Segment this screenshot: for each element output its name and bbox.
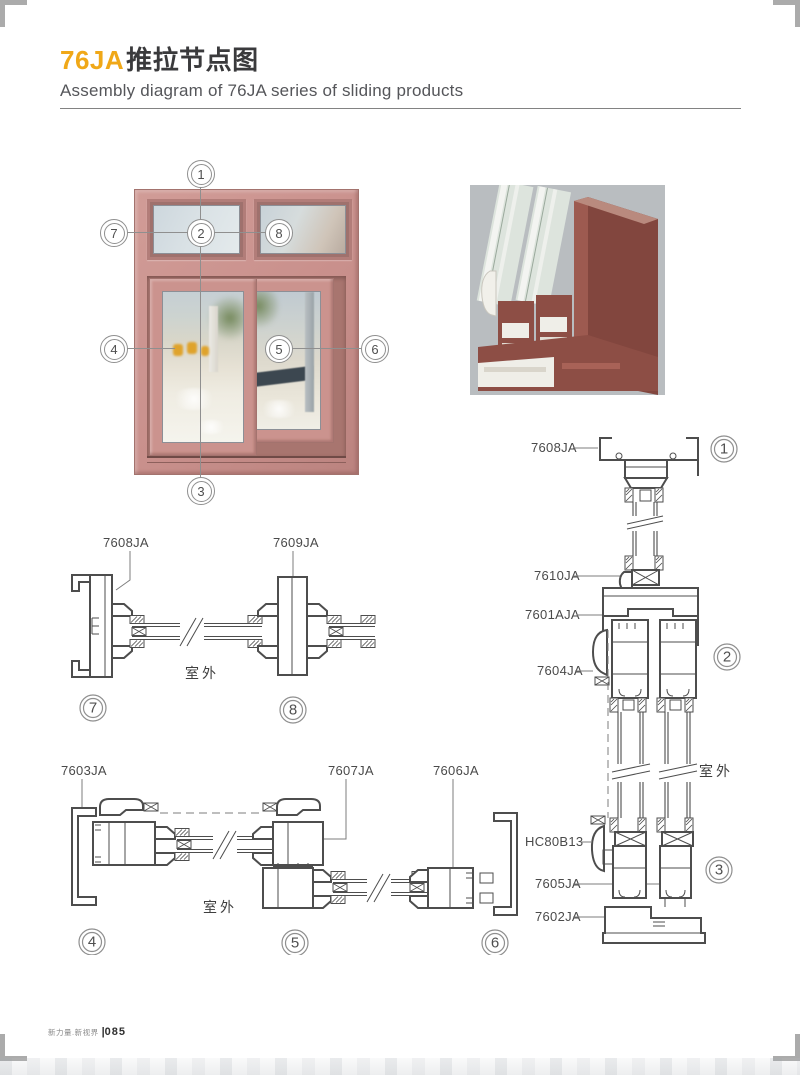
section-callout-7-number: 7 [89, 700, 97, 717]
section-callout-6: 6 [482, 930, 508, 955]
crop-mark-bottom-right [773, 1034, 800, 1061]
page-footer: 新力量.新视界 | 085 [48, 1026, 126, 1038]
callout-line-mid-right [291, 348, 361, 349]
catalog-page: 76JA推拉节点图 Assembly diagram of 76JA serie… [0, 0, 800, 1075]
callout-line-mid-left [126, 348, 175, 349]
callout-5-number: 5 [269, 339, 290, 360]
sash-left [149, 278, 257, 456]
bottom-decor-band [0, 1058, 800, 1075]
callout-7-number: 7 [104, 223, 125, 244]
section-callout-2: 2 [714, 644, 740, 670]
section-callout-8: 8 [280, 697, 306, 723]
callout-4-number: 4 [104, 339, 125, 360]
section-callout-3: 3 [706, 857, 732, 883]
chair-yellow-1 [173, 344, 183, 356]
header-divider [60, 108, 741, 109]
page-title-series: 76JA [60, 45, 124, 75]
crop-mark-top-right [773, 0, 800, 27]
pillar [209, 306, 218, 372]
label-7608ja-right: 7608JA [531, 440, 577, 455]
callout-6-number: 6 [365, 339, 386, 360]
label-7603ja: 7603JA [61, 763, 107, 778]
section-callout-2-number: 2 [723, 649, 731, 666]
section-callout-6-number: 6 [491, 935, 499, 952]
label-hc80b13: HC80B13 [525, 834, 583, 849]
crop-mark-bottom-left [0, 1034, 27, 1061]
chair-yellow-3 [201, 346, 209, 356]
chair-yellow-2 [187, 342, 197, 354]
door-edge [305, 292, 314, 412]
outdoor-label-bottom: 室外 [203, 899, 237, 915]
floor-reflection-left2 [193, 420, 229, 434]
page-header: 76JA推拉节点图 Assembly diagram of 76JA serie… [60, 46, 741, 109]
callout-2: 2 [187, 219, 215, 247]
footer-brand: 新力量.新视界 [48, 1027, 99, 1038]
section-callout-7: 7 [80, 695, 106, 721]
section-callout-1-number: 1 [720, 441, 728, 458]
callout-4: 4 [100, 335, 128, 363]
bench-silhouette [248, 366, 313, 389]
sash-left-glass [162, 291, 244, 443]
bottom-track-line-2 [147, 462, 346, 463]
section-callout-5: 5 [282, 930, 308, 955]
callout-6: 6 [361, 335, 389, 363]
callout-1-number: 1 [191, 164, 212, 185]
callout-1: 1 [187, 160, 215, 188]
page-subtitle: Assembly diagram of 76JA series of slidi… [60, 81, 741, 101]
label-7606ja: 7606JA [433, 763, 479, 778]
callout-7: 7 [100, 219, 128, 247]
floor-reflection [257, 400, 301, 418]
label-7601aja: 7601AJA [525, 607, 580, 622]
label-7608ja-mid: 7608JA [103, 535, 149, 550]
section-callout-1: 1 [711, 436, 737, 462]
profile-3d-render [470, 185, 665, 395]
label-7607ja: 7607JA [328, 763, 374, 778]
callout-3: 3 [187, 477, 215, 505]
callout-3-number: 3 [191, 481, 212, 502]
outdoor-label-mid: 室外 [185, 665, 219, 681]
floor-reflection-left [169, 388, 219, 410]
section-7-8-drawing: 7608JA 7609JA 室外 7 [30, 520, 390, 740]
page-title-cn: 推拉节点图 [126, 45, 259, 75]
page-title: 76JA推拉节点图 [60, 46, 741, 75]
callout-8-number: 8 [269, 223, 290, 244]
section-callout-3-number: 3 [715, 862, 723, 879]
footer-page-number: 085 [105, 1026, 126, 1038]
callout-5: 5 [265, 335, 293, 363]
section-callout-5-number: 5 [291, 935, 299, 952]
bottom-track-line [147, 456, 346, 458]
section-callout-8-number: 8 [289, 702, 297, 719]
label-7609ja: 7609JA [273, 535, 319, 550]
section-4-5-6-drawing: 7603JA 7607JA 7606JA [30, 755, 520, 955]
section-callout-4-number: 4 [88, 934, 96, 951]
crop-mark-top-left [0, 0, 27, 27]
section-1-2-3-drawing: 7608JA 7610JA 7601AJA 7604JA HC80B13 760… [515, 430, 780, 965]
profile-3d-render-svg [470, 185, 665, 395]
outdoor-label-right: 室外 [699, 763, 733, 779]
section-callout-4: 4 [79, 929, 105, 955]
callout-8: 8 [265, 219, 293, 247]
callout-2-number: 2 [191, 223, 212, 244]
window-lower-opening [147, 276, 346, 456]
